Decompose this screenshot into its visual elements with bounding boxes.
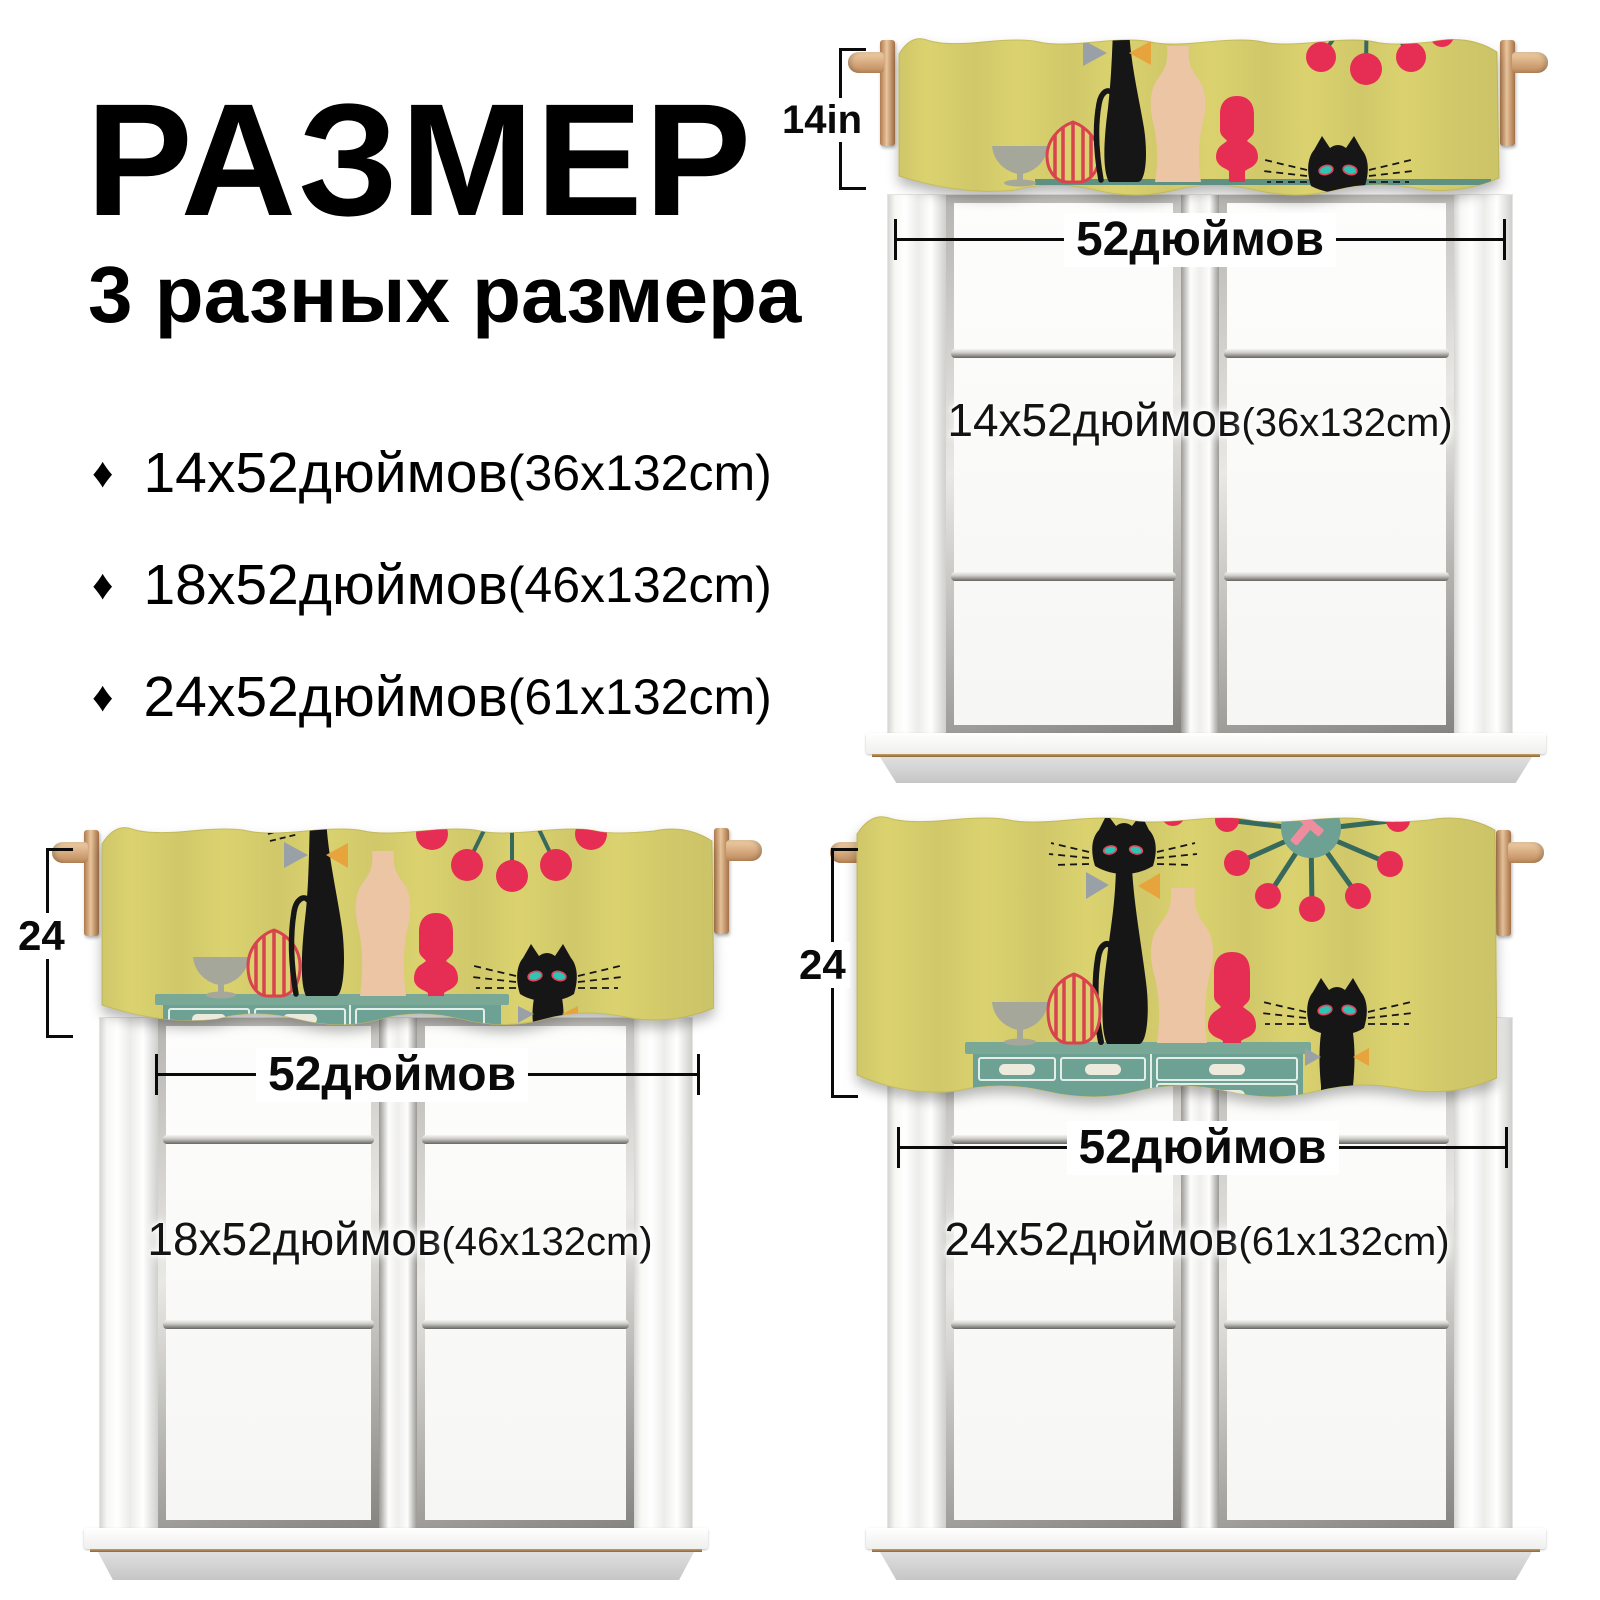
size-infographic: РАЗМЕР 3 разных размера ♦ 14x52дюймов (3… [0,0,1600,1600]
size-metric: (61x132cm) [1238,1220,1449,1264]
valance-18in-graphic [100,818,714,1030]
window-frame [888,195,1512,733]
width-label: 52дюймов [1064,213,1336,267]
window-casing-right [1454,195,1512,733]
window-apron [880,1552,1532,1580]
window-panes [954,203,1173,725]
height-label: 24 [795,942,850,988]
valance-14in-graphic [896,30,1500,200]
muntin-bar [951,1320,1176,1329]
curtain-rod-finial [726,840,762,861]
muntin-bar [1224,349,1449,358]
window-apron [880,757,1532,783]
bracket-tick [46,848,73,851]
bracket-tick [894,219,897,260]
size-text: 24x52дюймов [143,664,507,730]
width-bracket: 52дюймов [155,1073,700,1076]
size-text: 18x52дюймов [147,1213,441,1265]
window-casing-left [100,1018,158,1528]
list-item: ♦ 24x52дюймов (61x132cm) [92,664,772,730]
window-sash-left [946,195,1181,733]
muntin-bar [1224,1320,1449,1329]
muntin-bar [422,1135,629,1144]
size-text: 18x52дюймов [143,552,507,618]
bracket-tick [897,1127,900,1168]
bracket-tick [46,1035,73,1038]
diamond-bullet-icon: ♦ [92,440,113,506]
bracket-tick [839,187,866,190]
bracket-tick [697,1054,700,1095]
diamond-bullet-icon: ♦ [92,664,113,730]
bracket-tick [1503,219,1506,260]
candlestick-graphic [414,913,458,996]
bracket-tick [839,48,866,51]
muntin-bar [1224,572,1449,581]
window-casing-left [888,195,946,733]
window-size-text: 24x52дюймов(61x132cm) [944,1214,1449,1265]
window-size-text: 18x52дюймов(46x132cm) [147,1214,652,1265]
curtain-rod-finial [1508,842,1544,863]
size-text: 14x52дюймов [143,440,507,506]
size-metric: (36x132cm) [1241,401,1452,445]
window-sill [866,733,1546,754]
size-metric: (46x132cm) [508,552,772,618]
size-metric: (36x132cm) [508,440,772,506]
width-label: 52дюймов [1066,1121,1338,1175]
page-subtitle: 3 разных размера [88,255,801,335]
sill-trim [872,754,1540,757]
sill-trim [872,1549,1540,1552]
candlestick-graphic [1208,952,1256,1043]
muntin-bar [163,1135,374,1144]
window-sill [84,1528,708,1549]
size-metric: (61x132cm) [508,664,772,730]
size-text: 24x52дюймов [944,1213,1238,1265]
window-mullion [1181,195,1219,733]
window-sash-right [1219,195,1454,733]
sill-trim [90,1549,702,1552]
window-sill [866,1528,1546,1549]
width-bracket: 52дюймов [897,1146,1508,1149]
list-item: ♦ 18x52дюймов (46x132cm) [92,552,772,618]
window-casing-right [634,1018,692,1528]
curtain-rod-finial [1512,52,1548,73]
size-options-list: ♦ 14x52дюймов (36x132cm) ♦ 18x52дюймов (… [92,440,772,730]
bracket-tick [1505,1127,1508,1168]
curtain-rod-finial [848,52,884,73]
muntin-bar [163,1320,374,1329]
window-apron [98,1552,694,1580]
window-size-text: 14x52дюймов(36x132cm) [947,395,1452,446]
bracket-tick [831,848,858,851]
height-label: 24 [14,913,69,959]
height-label: 14in [778,98,866,142]
size-metric: (46x132cm) [441,1220,652,1264]
curtain-rod-finial [52,842,88,863]
muntin-bar [951,572,1176,581]
width-label: 52дюймов [256,1048,528,1102]
valance-24in-graphic [855,806,1497,1104]
muntin-bar [951,349,1176,358]
page-title: РАЗМЕР [86,80,753,240]
bracket-tick [155,1054,158,1095]
bracket-tick [831,1095,858,1098]
window-panes [1227,203,1446,725]
credenza-graphic [965,1042,1311,1104]
width-bracket: 52дюймов [894,238,1506,241]
size-text: 14x52дюймов [947,394,1241,446]
diamond-bullet-icon: ♦ [92,552,113,618]
muntin-bar [422,1320,629,1329]
list-item: ♦ 14x52дюймов (36x132cm) [92,440,772,506]
